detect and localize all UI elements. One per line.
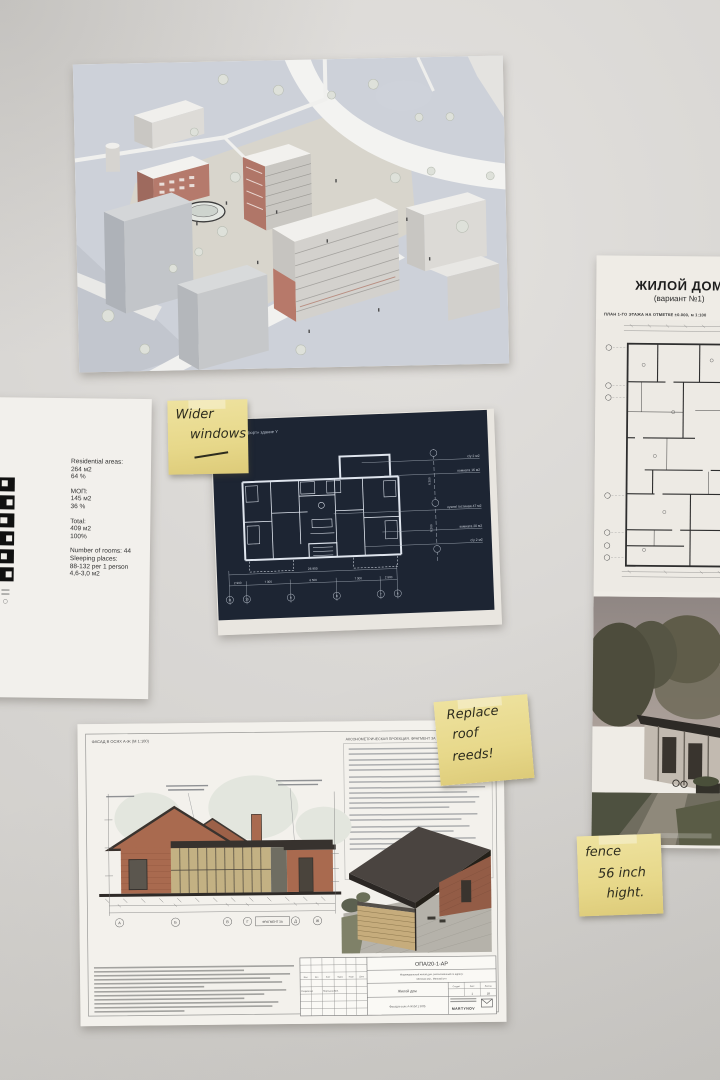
logo-text: MARTYNOV [452,1007,476,1011]
project-line-2: Минская обл., Минский р-н [417,977,448,980]
fragment-label: ФРАГМЕНТ 3А [262,920,283,924]
stats-block: МОП: 145 м2 36 % [70,488,131,512]
note-underline [194,451,228,458]
note-line: 56 inch [598,866,646,882]
variant-subtitle: (вариант №1) [630,294,720,304]
svg-text:7 300: 7 300 [354,576,362,580]
note-line: reeds! [452,747,495,765]
svg-text:10: 10 [245,597,249,601]
note-line: windows [190,427,246,442]
sticky-note-wider-windows: Wider windows [167,399,248,474]
entry-door [299,858,313,892]
svg-text:с/у 2 м2: с/у 2 м2 [470,538,483,542]
stats-block: Total: 409 м2 100% [70,518,131,542]
sticky-note-replace-roof: Replace roof reeds! [434,694,535,786]
blueprint-drawing: …га «комфорт» здание Y [210,409,502,636]
plan-diagram-strip [0,477,21,607]
svg-text:Стадия: Стадия [453,986,460,988]
stat-line: Residential areas: [71,458,132,466]
site-render-sheet [73,56,509,373]
exterior-photo [591,596,720,845]
svg-text:Изм: Изм [304,977,308,979]
note-line: Wider [175,408,213,423]
sheet-name: Фасад в осях А-Ж (М 1:100) [389,1004,425,1008]
vdim-label: 6 200 [427,477,431,485]
svg-text:комната 20 м2: комната 20 м2 [459,524,482,529]
role-label: Разработал [301,991,314,993]
wall-background: ЖИЛОЙ ДОМ (вариант №1) ПЛАН 1-ГО ЭТАЖА Н… [0,0,720,1080]
floorplan-drawing [594,319,720,592]
stat-line: 64 % [71,473,132,481]
svg-text:Лист: Лист [470,986,475,988]
svg-text:18: 18 [487,991,491,995]
svg-text:6 500: 6 500 [309,578,317,582]
svg-text:7 300: 7 300 [264,580,272,584]
sticky-note-fence-height: fence 56 inch hight. [577,834,664,917]
stat-line: Sleeping places: [70,555,131,563]
vdim-label: 6 200 [429,524,433,532]
svg-text:Ж: Ж [316,919,320,923]
stat-line: 4,6-3,0 м2 [70,570,131,578]
title-block: Изм Кол Лист №док Подп Дата Разработал М… [300,956,497,1016]
svg-text:Д: Д [294,919,297,923]
window [129,860,147,890]
note-line: roof [452,727,479,743]
sheet-code: ОПА/20-1-АР [415,961,448,967]
role-name: Мартынов М.В. [323,991,339,993]
note-line: Replace [446,705,499,723]
watermark [654,833,712,839]
site-render-image [73,56,509,373]
glass-door [271,847,287,892]
stage-headers: Стадия Лист Листов [453,986,493,988]
svg-text:Г: Г [246,920,248,924]
stats-block: Number of rooms: 44 Sleeping places: 88-… [70,547,131,578]
svg-text:комната 16 м2: комната 16 м2 [457,468,480,473]
building-round-tower [105,143,120,172]
stat-line: 36 % [70,503,131,511]
house [636,715,720,794]
plan-caption: ПЛАН 1-ГО ЭТАЖА НА ОТМЕТКЕ ±0.000, м 1:1… [604,312,706,318]
caption-left: ФАСАД В ОСЯХ А-Ж (М 1:100) [92,738,150,744]
area-stats-text: Residential areas: 264 м2 64 % МОП: 145 … [70,458,133,585]
svg-text:с/у 2 м2: с/у 2 м2 [467,454,480,458]
area-stats-sheet: Residential areas: 264 м2 64 % МОП: 145 … [0,397,152,699]
variant-sheet: ЖИЛОЙ ДОМ (вариант №1) ПЛАН 1-ГО ЭТАЖА Н… [591,255,720,848]
building-terracotta-2 [243,144,313,231]
svg-text:Лист: Лист [326,977,330,979]
svg-text:2 900: 2 900 [385,575,393,579]
total-dim: 26 900 [308,566,318,570]
svg-text:11: 11 [228,598,232,602]
svg-text:№док: №док [337,975,342,978]
blueprint-field [211,410,494,620]
svg-text:Подп: Подп [349,976,354,978]
stats-block: Residential areas: 264 м2 64 % [71,458,132,482]
svg-text:Листов: Листов [485,986,493,988]
variant-title: ЖИЛОЙ ДОМ [630,278,720,294]
svg-text:2 900: 2 900 [234,581,242,585]
object-name: Жилой дом [398,989,418,993]
note-line: fence [585,845,621,860]
window [461,880,471,902]
right-roof-band [284,845,336,851]
blueprint-sheet: …га «комфорт» здание Y [210,409,502,636]
stat-line: 100% [70,533,131,541]
note-line: hight. [606,886,644,901]
